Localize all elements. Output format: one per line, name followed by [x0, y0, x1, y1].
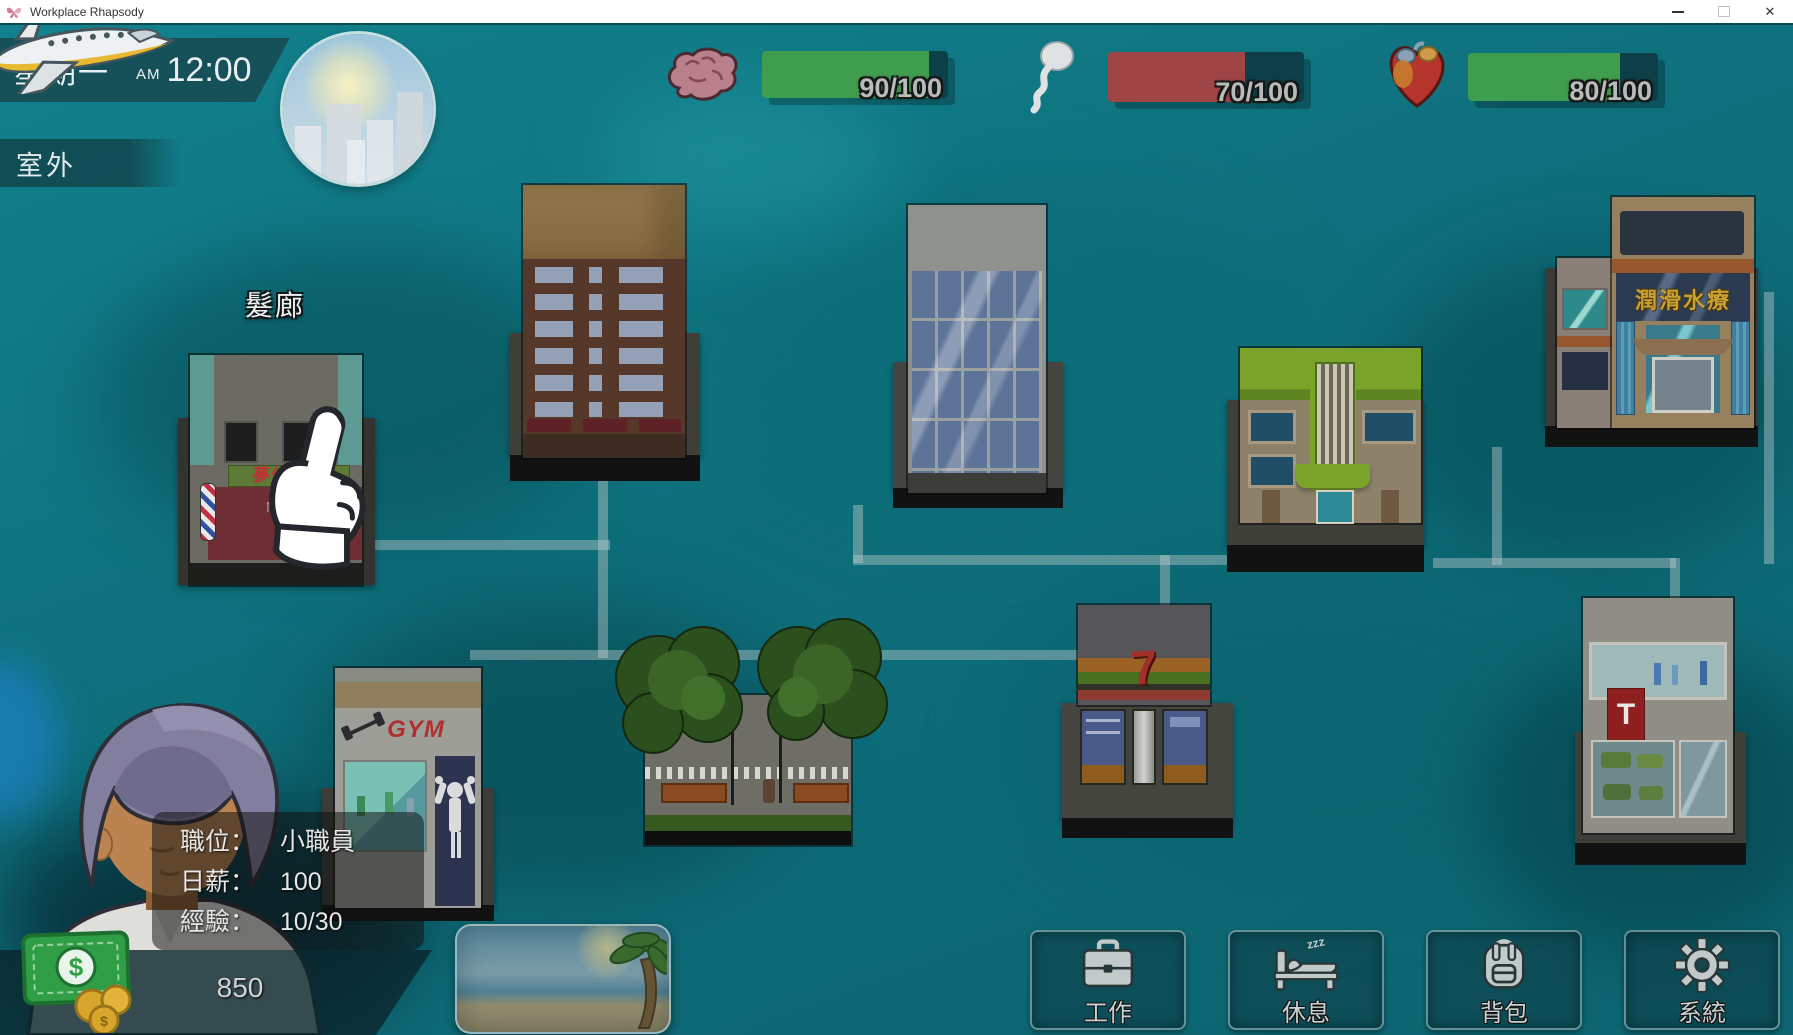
building-seven-store[interactable]: 7: [1078, 605, 1210, 705]
backpack-button-label: 背包: [1480, 993, 1528, 1028]
spa-band: [1612, 259, 1754, 273]
spa-door: [1652, 357, 1714, 413]
seven-window: [1080, 709, 1126, 785]
tstore-green-item: [1603, 784, 1631, 800]
greenhouse-shutter: [1315, 362, 1355, 478]
work-button[interactable]: 工作: [1030, 930, 1186, 1030]
greenhouse-window: [1362, 410, 1416, 444]
tstore-bottle: [1654, 663, 1661, 685]
system-button-label: 系統: [1678, 993, 1726, 1028]
seven-footer: [1062, 818, 1233, 838]
park-trashcan: [763, 779, 775, 803]
rest-button-label: 休息: [1282, 993, 1330, 1028]
spa-annex-window: [1562, 288, 1608, 330]
greenhouse-window: [1248, 410, 1296, 444]
office-ground: [908, 473, 1046, 493]
spa-annex[interactable]: [1557, 258, 1613, 428]
minimize-icon: [1672, 11, 1684, 13]
spa-pillar: [1616, 321, 1635, 415]
hand-cursor: [244, 406, 386, 574]
skyline-building: [367, 120, 393, 184]
skyline-building: [397, 92, 423, 184]
salary-label: 日薪：: [180, 862, 280, 902]
gym-people: [385, 792, 393, 814]
info-row-salary: 日薪： 100: [180, 862, 424, 902]
skyline-building: [295, 126, 321, 184]
seven-poster: [1170, 717, 1200, 727]
apartment-ground: [523, 434, 685, 458]
greenhouse-awning: [1296, 464, 1370, 488]
tstore-footer: [1575, 843, 1746, 865]
seven-window-bottom: [1164, 765, 1206, 783]
info-row-exp: 經驗： 10/30: [180, 902, 424, 942]
gym-banner: [435, 756, 475, 906]
skyline-building: [347, 140, 365, 184]
job-label: 職位：: [180, 822, 280, 862]
road: [1764, 292, 1774, 564]
location-label: 室外: [16, 144, 76, 183]
backpack-icon: [1475, 936, 1533, 993]
barber-pole: [200, 483, 216, 541]
rest-button[interactable]: zzz 休息: [1228, 930, 1384, 1030]
road: [853, 555, 1230, 565]
window-title: Workplace Rhapsody: [30, 5, 144, 19]
tstore-lower-window-left: [1591, 740, 1675, 818]
spa-annex-window2: [1562, 352, 1608, 390]
seven-shelf: [1086, 731, 1120, 734]
greenhouse-window: [1248, 454, 1296, 488]
close-button[interactable]: ✕: [1747, 0, 1793, 23]
money-icon: $ $: [20, 928, 140, 1033]
park-fence: [645, 767, 851, 779]
park-tree: [608, 618, 758, 768]
health-bar: 80/100: [1468, 53, 1658, 101]
park-bench: [793, 783, 849, 803]
building-green-house[interactable]: [1240, 348, 1421, 523]
park-tree: [738, 612, 898, 762]
backpack-button[interactable]: 背包: [1426, 930, 1582, 1030]
tstore-green-item: [1637, 754, 1663, 768]
minimize-button[interactable]: [1655, 0, 1701, 23]
tstore-sign: T: [1607, 688, 1645, 742]
work-button-label: 工作: [1084, 993, 1132, 1028]
window-controls: ✕: [1655, 0, 1793, 23]
apartment-awnings: [527, 419, 681, 432]
game-window: 髮廊 夢幻髮廊 M: [0, 0, 1793, 1035]
svg-text:$: $: [69, 952, 84, 982]
travel-button[interactable]: [455, 924, 671, 1034]
spa-canopy: [1634, 339, 1732, 355]
money-value: 850: [150, 972, 330, 1004]
svg-text:$: $: [100, 1013, 108, 1029]
gear-icon: [1672, 937, 1732, 993]
seven-sign-text: 7: [1076, 636, 1212, 700]
apartment-roof: [523, 185, 685, 259]
tstore-green-item: [1639, 786, 1663, 800]
player-info-panel: 職位： 小職員 日薪： 100 經驗： 10/30: [152, 812, 424, 950]
apartment-footer: [510, 455, 700, 481]
tstore-bottle: [1672, 665, 1678, 685]
intellect-bar: 90/100: [762, 51, 948, 98]
exp-label: 經驗：: [180, 902, 280, 942]
tstore-sign-text: T: [1617, 698, 1635, 732]
brain-icon: [664, 46, 740, 104]
weightlifter-icon: [435, 774, 475, 874]
gym-band: [335, 682, 481, 708]
location-strip: 室外: [0, 139, 182, 187]
office-windows: [912, 271, 1042, 473]
stamina-bar: 70/100: [1108, 52, 1304, 102]
gym-sign-text: GYM: [381, 716, 451, 744]
greenhouse-pillar: [1262, 490, 1280, 523]
svg-text:zzz: zzz: [1306, 936, 1326, 952]
park-bench: [661, 783, 727, 803]
road: [1492, 447, 1502, 565]
salary-value: 100: [280, 862, 322, 902]
greenhouse-footer: [1227, 545, 1424, 572]
sperm-icon: [1012, 38, 1078, 118]
greenhouse-door: [1316, 490, 1354, 524]
stamina-value: 70/100: [1215, 77, 1298, 108]
road: [1433, 558, 1676, 568]
job-value: 小職員: [280, 822, 355, 862]
heart-icon: [1385, 40, 1449, 112]
health-value: 80/100: [1569, 76, 1652, 107]
road: [1160, 555, 1170, 610]
salon-label: 髮廊: [210, 284, 340, 324]
maximize-icon: [1718, 6, 1730, 17]
seven-window-bottom: [1082, 765, 1124, 783]
app-icon: [6, 5, 22, 19]
maximize-button[interactable]: [1701, 0, 1747, 23]
seven-shelf: [1086, 719, 1120, 722]
bed-icon: zzz: [1268, 936, 1344, 993]
road: [598, 478, 608, 658]
intellect-value: 90/100: [859, 73, 942, 104]
titlebar: Workplace Rhapsody ✕: [0, 0, 1793, 25]
spa-top-window: [1620, 211, 1744, 255]
exp-value: 10/30: [280, 902, 343, 942]
spa-annex-band: [1557, 336, 1613, 347]
building-t-store[interactable]: T: [1583, 598, 1733, 833]
weather-indicator[interactable]: [283, 34, 433, 184]
park-ground-footer: [645, 831, 851, 845]
building-apartment[interactable]: [523, 185, 685, 458]
apartment-windows: [535, 267, 573, 417]
info-row-job: 職位： 小職員: [180, 822, 424, 862]
spa-sign-text: 潤滑水療: [1612, 283, 1754, 315]
travel-dim-overlay: [457, 926, 669, 1032]
tstore-bottle: [1700, 661, 1707, 685]
greenhouse-pillar: [1381, 490, 1399, 523]
briefcase-icon: [1076, 938, 1140, 993]
apartment-windows: [589, 267, 602, 417]
building-glass-office[interactable]: [908, 205, 1046, 493]
close-icon: ✕: [1765, 4, 1776, 20]
tstore-lower-window-right: [1679, 740, 1727, 818]
building-spa[interactable]: 潤滑水療: [1612, 197, 1754, 428]
seven-shopfront: [1078, 705, 1210, 785]
seven-window: [1162, 709, 1208, 785]
tstore-green-item: [1601, 752, 1631, 768]
system-button[interactable]: 系統: [1624, 930, 1780, 1030]
spa-footer: [1545, 426, 1758, 447]
salon-side: [190, 355, 214, 465]
park-grass: [645, 815, 851, 831]
apartment-windows: [619, 267, 663, 417]
seven-door: [1132, 709, 1156, 785]
gym-roof: [335, 668, 481, 682]
spa-pillar: [1731, 321, 1750, 415]
